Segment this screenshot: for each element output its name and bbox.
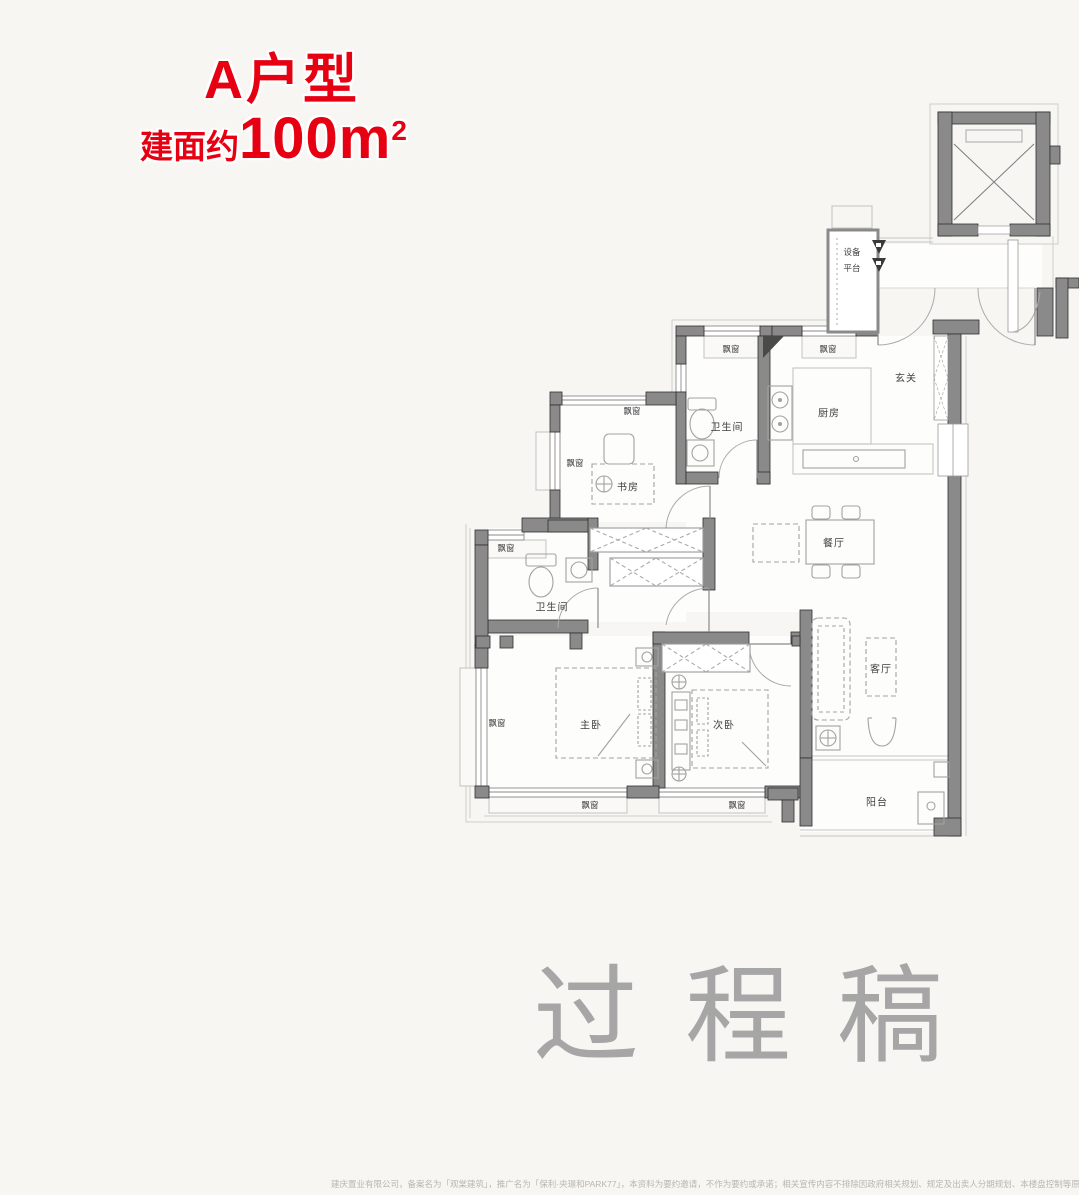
label-living: 客厅 bbox=[870, 661, 892, 676]
label-bay-window-1: 飘窗 bbox=[722, 343, 739, 355]
area-superscript: 2 bbox=[391, 115, 407, 147]
disclaimer-text: 建庆置业有限公司，备案名为「观棠建筑」，推广名为「保利·央璟和PARK77」，本… bbox=[331, 1178, 1079, 1190]
label-kitchen: 厨房 bbox=[818, 405, 840, 420]
label-bay-window-4: 飘窗 bbox=[566, 457, 583, 469]
label-balcony: 阳台 bbox=[866, 794, 888, 809]
label-equipment-platform-line2: 平台 bbox=[843, 262, 860, 274]
label-equipment-platform-line1: 设备 bbox=[843, 246, 860, 258]
label-bay-window-8: 飘窗 bbox=[728, 799, 745, 811]
label-bay-window-3: 飘窗 bbox=[623, 405, 640, 417]
floorplan-page: 设备 平台 玄关 厨房 卫生间 书房 餐厅 卫生间 主卧 次卧 客厅 阳台 飘窗… bbox=[0, 0, 1079, 1195]
label-bay-window-7: 飘窗 bbox=[581, 799, 598, 811]
area-prefix: 建面约 bbox=[140, 120, 239, 168]
label-bathroom-upper: 卫生间 bbox=[711, 419, 744, 434]
label-bathroom-lower: 卫生间 bbox=[536, 599, 569, 614]
area-value: 100m bbox=[239, 113, 391, 165]
label-bay-window-5: 飘窗 bbox=[497, 542, 514, 554]
label-bay-window-2: 飘窗 bbox=[819, 343, 836, 355]
label-second-bedroom: 次卧 bbox=[713, 717, 735, 732]
label-entry-hall: 玄关 bbox=[895, 370, 917, 385]
label-bay-window-6: 飘窗 bbox=[488, 717, 505, 729]
label-dining: 餐厅 bbox=[823, 535, 845, 550]
label-study: 书房 bbox=[617, 479, 639, 494]
unit-title: A户型 bbox=[140, 52, 407, 109]
label-master-bedroom: 主卧 bbox=[580, 717, 602, 732]
area-line: 建面约 100m 2 bbox=[140, 113, 407, 168]
title-block: A户型 建面约 100m 2 bbox=[140, 52, 407, 168]
watermark-draft: 过程稿 bbox=[533, 930, 989, 1084]
